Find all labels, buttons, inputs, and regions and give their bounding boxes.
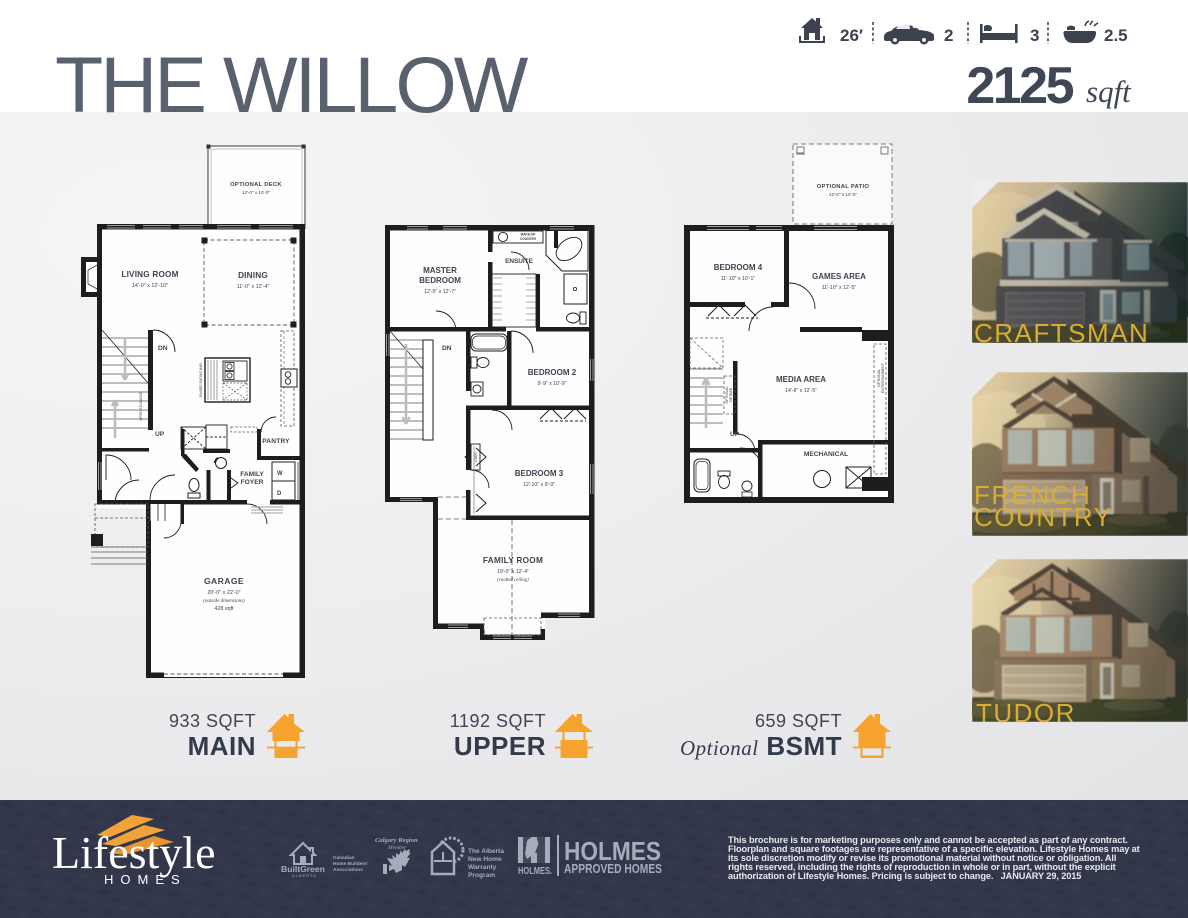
svg-text:HOMES: HOMES <box>104 872 187 886</box>
svg-text:MEDIA AREA: MEDIA AREA <box>776 375 826 384</box>
svg-text:428 sqft: 428 sqft <box>214 606 234 612</box>
svg-text:Canadian: Canadian <box>333 855 355 861</box>
svg-text:WETBAR: WETBAR <box>729 387 733 402</box>
svg-text:UP: UP <box>730 431 740 438</box>
svg-text:The Alberta: The Alberta <box>468 848 504 855</box>
svg-text:11′-10″ x 10′-1″: 11′-10″ x 10′-1″ <box>721 276 756 282</box>
svg-text:FOYER: FOYER <box>241 479 264 486</box>
svg-text:BEDROOM: BEDROOM <box>419 276 461 285</box>
svg-text:11′-0″ x 12′-4″: 11′-0″ x 12′-4″ <box>237 284 270 290</box>
svg-text:BEDROOM 3: BEDROOM 3 <box>515 469 564 478</box>
svg-text:z: z <box>984 26 988 33</box>
svg-text:DN: DN <box>442 345 452 352</box>
svg-text:W: W <box>277 471 283 477</box>
svg-text:PANTRY: PANTRY <box>262 438 290 445</box>
svg-text:OPTIONAL PATIO: OPTIONAL PATIO <box>817 184 870 190</box>
svg-text:DN: DN <box>158 345 168 352</box>
svg-text:2.5: 2.5 <box>1104 26 1128 45</box>
svg-text:Member: Member <box>387 845 407 851</box>
svg-text:3: 3 <box>1030 26 1039 45</box>
svg-text:Associations: Associations <box>333 867 363 873</box>
svg-text:GAMES AREA: GAMES AREA <box>812 272 866 281</box>
svg-text:BEDROOM 4: BEDROOM 4 <box>714 263 763 272</box>
svg-text:Calgary Region: Calgary Region <box>375 837 418 844</box>
svg-text:12′-5″ x 12′-7″: 12′-5″ x 12′-7″ <box>424 289 456 295</box>
svg-text:Lifestyle: Lifestyle <box>52 827 216 878</box>
svg-text:UP: UP <box>155 431 165 438</box>
svg-text:OPTIONAL DECK: OPTIONAL DECK <box>230 182 282 188</box>
svg-text:ENTERTAINMENT: ENTERTAINMENT <box>881 362 885 393</box>
svg-text:Warranty: Warranty <box>468 864 497 871</box>
svg-text:ALBERTA: ALBERTA <box>292 873 317 878</box>
svg-text:LIVING ROOM: LIVING ROOM <box>121 270 178 279</box>
svg-text:New Home: New Home <box>468 856 502 863</box>
svg-text:(vaulted ceiling): (vaulted ceiling) <box>497 578 529 583</box>
svg-text:2: 2 <box>944 26 953 45</box>
svg-text:11′-10″ x 12′-5″: 11′-10″ x 12′-5″ <box>822 285 857 291</box>
svg-text:Program: Program <box>468 872 495 879</box>
svg-text:12′-10″ x 9′-9″: 12′-10″ x 9′-9″ <box>523 482 555 488</box>
svg-text:12′-0″ x 10′-0″: 12′-0″ x 10′-0″ <box>242 190 271 195</box>
svg-text:FAMILY: FAMILY <box>240 471 264 478</box>
svg-text:D: D <box>277 491 282 497</box>
svg-text:FAMILY ROOM: FAMILY ROOM <box>483 556 543 565</box>
svg-text:20′-0″ x 22′-0″: 20′-0″ x 22′-0″ <box>207 590 240 596</box>
svg-text:COUNTER: COUNTER <box>520 237 536 241</box>
svg-text:(outside dimensions): (outside dimensions) <box>203 599 245 604</box>
svg-text:Home Builders’: Home Builders’ <box>333 861 368 867</box>
svg-text:ENSUITE: ENSUITE <box>505 258 533 265</box>
svg-text:RAISED EATING BAR: RAISED EATING BAR <box>199 363 203 397</box>
svg-text:HOLMES.: HOLMES. <box>518 866 552 877</box>
svg-text:9′-9″ x 10′-9″: 9′-9″ x 10′-9″ <box>538 381 567 387</box>
svg-text:26′: 26′ <box>840 26 863 45</box>
svg-text:LINEN: LINEN <box>474 451 478 462</box>
svg-text:12′-0″ x 10′-0″: 12′-0″ x 10′-0″ <box>829 192 858 197</box>
svg-text:14′-0″ x 12′-10″: 14′-0″ x 12′-10″ <box>132 283 168 289</box>
svg-text:MAKE-UP: MAKE-UP <box>521 233 537 237</box>
svg-text:MASTER: MASTER <box>423 266 457 275</box>
svg-text:GARAGE: GARAGE <box>204 576 244 586</box>
svg-text:14′-8″ x 12′-5″: 14′-8″ x 12′-5″ <box>785 388 817 394</box>
svg-text:APPROVED HOMES: APPROVED HOMES <box>564 861 662 876</box>
svg-text:MECHANICAL: MECHANICAL <box>804 451 848 458</box>
svg-text:DINING: DINING <box>238 271 268 280</box>
svg-text:19′-0″ x 12′-4″: 19′-0″ x 12′-4″ <box>497 569 529 575</box>
svg-text:BEDROOM 2: BEDROOM 2 <box>528 368 577 377</box>
svg-text:OPEN TO ABOVE: OPEN TO ABOVE <box>139 391 143 421</box>
